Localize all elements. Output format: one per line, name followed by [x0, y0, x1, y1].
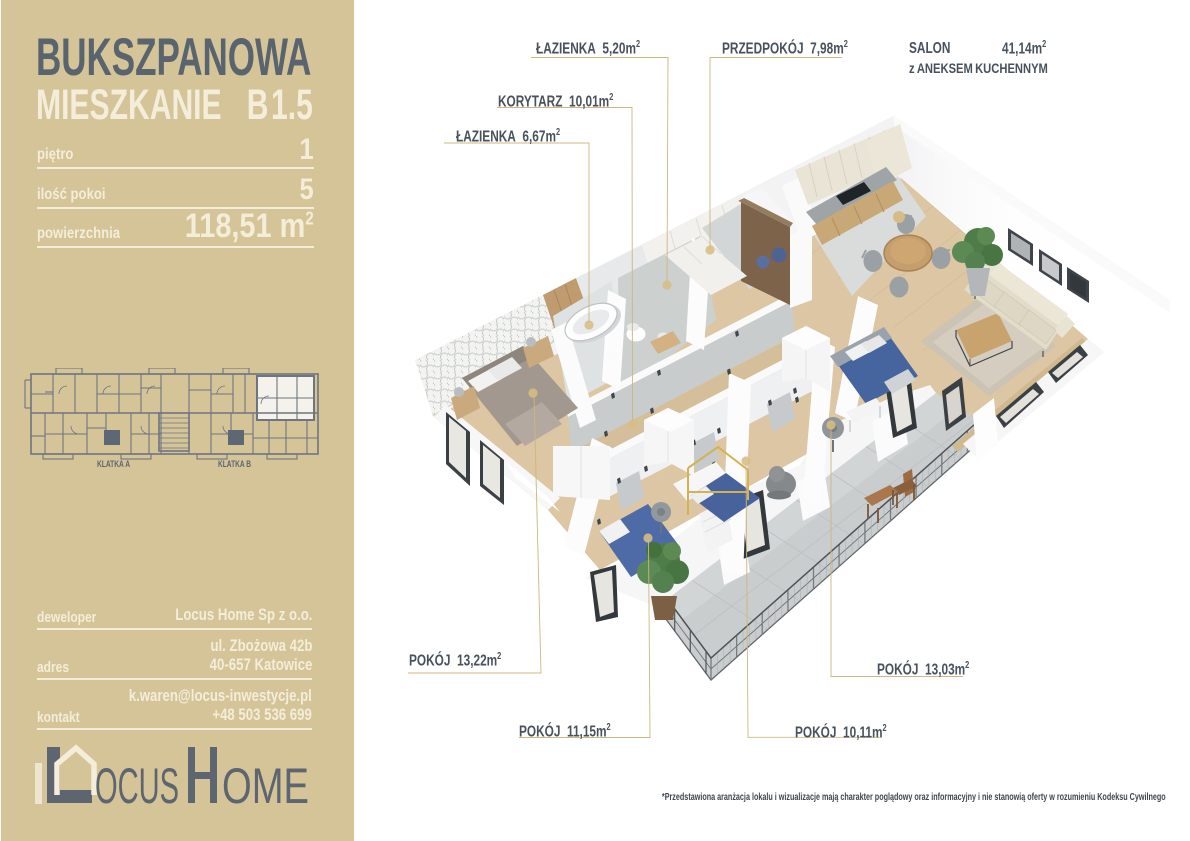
svg-text:KLATKA B: KLATKA B [218, 459, 251, 470]
svg-text:OCUS: OCUS [95, 758, 179, 810]
svg-text:KLATKA A: KLATKA A [97, 459, 130, 470]
svg-text:OME: OME [222, 758, 309, 810]
